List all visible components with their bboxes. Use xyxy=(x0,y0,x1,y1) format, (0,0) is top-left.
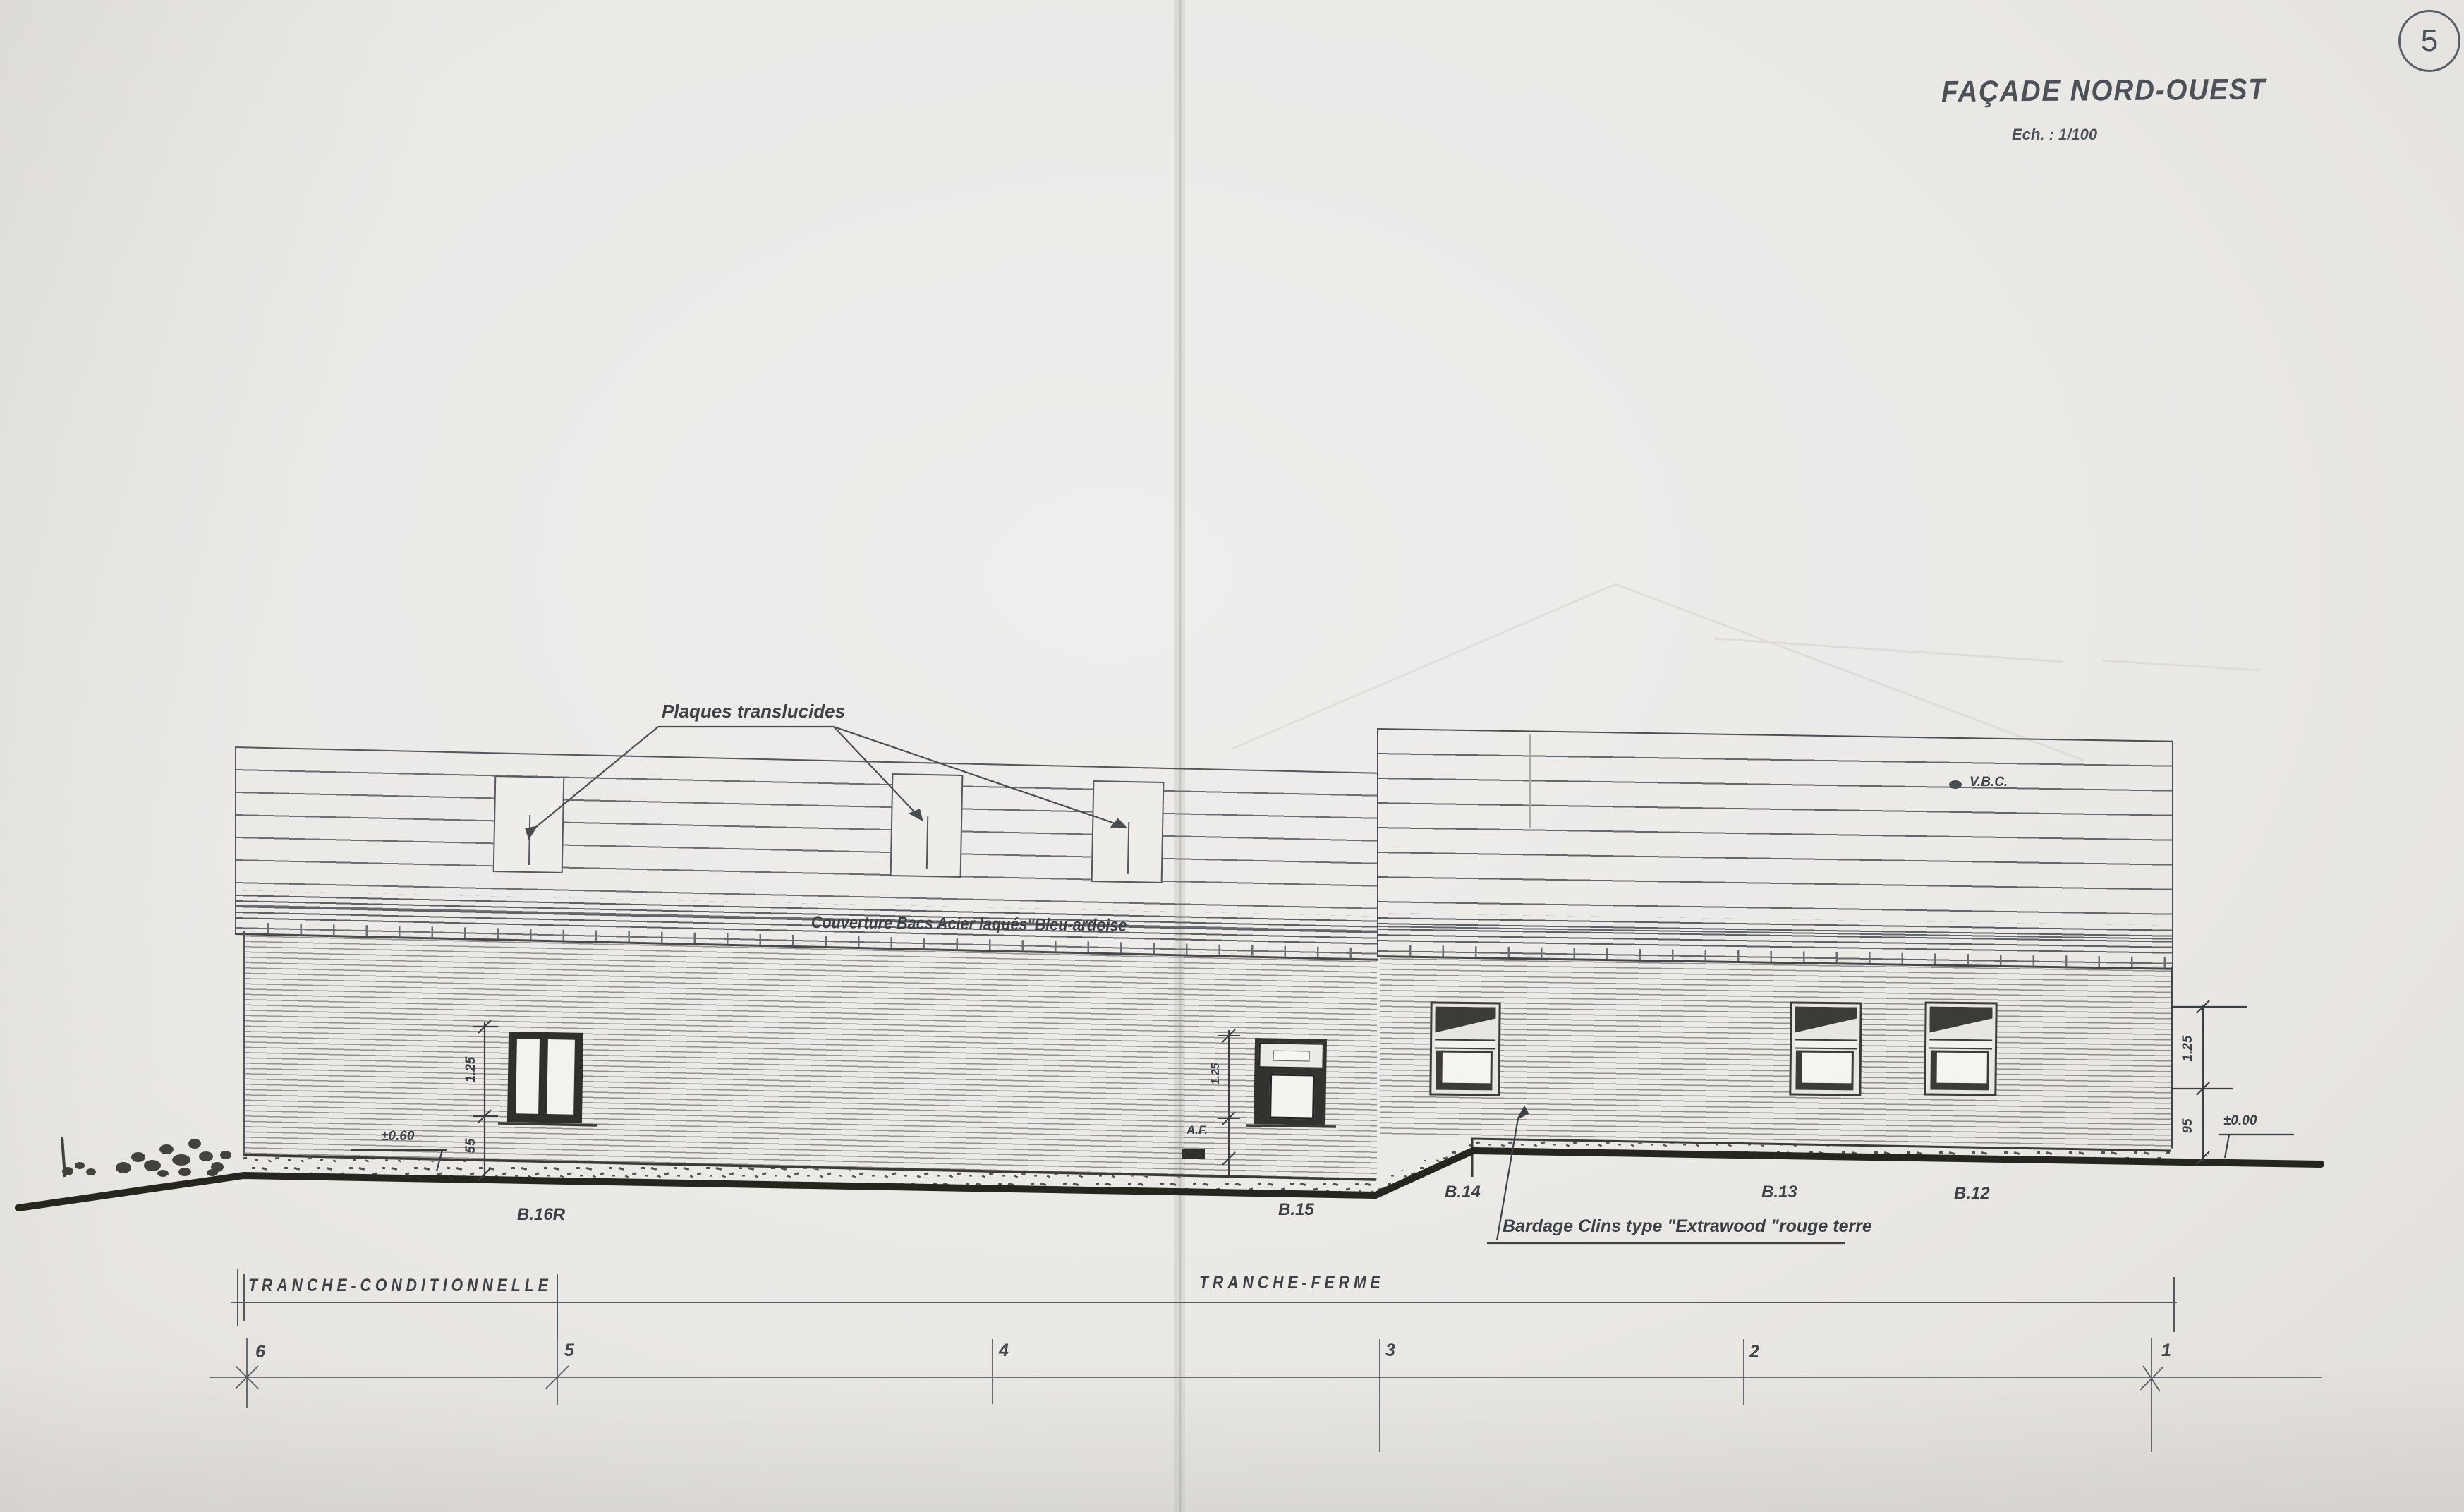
level-left: ±0.60 xyxy=(381,1129,414,1144)
window-sill-band xyxy=(1929,1039,1992,1050)
drawing-sheet: FAÇADE NORD-OUEST Ech. : 1/100 5 xyxy=(0,0,2464,1512)
window-label-b13: B.13 xyxy=(1761,1183,1797,1202)
window-b13 xyxy=(1789,1001,1862,1096)
roof-sheet-joint-line xyxy=(1529,734,1531,828)
grid-number-3: 3 xyxy=(1385,1341,1395,1361)
window-pane xyxy=(1436,1051,1493,1091)
scale-label: Ech. : 1/100 xyxy=(2012,126,2097,144)
grid-number-4: 4 xyxy=(999,1341,1009,1361)
dim-b15-height: 1.25 xyxy=(1210,1063,1222,1084)
open-transom-wedge xyxy=(1795,1007,1857,1037)
window-sill-band xyxy=(1435,1039,1495,1050)
open-transom-wedge xyxy=(1435,1007,1495,1037)
fold-crease xyxy=(1174,0,1185,1512)
window-b16r xyxy=(507,1032,583,1123)
open-transom-wedge xyxy=(1929,1007,1992,1037)
window-label-b15: B.15 xyxy=(1278,1200,1314,1220)
bardage-label: Bardage Clins type "Extrawood "rouge ter… xyxy=(1503,1216,1872,1237)
translucent-panel-1 xyxy=(493,775,565,873)
tranche-conditionnelle-label: TRANCHE-CONDITIONNELLE xyxy=(248,1276,552,1296)
sheet-number-badge: 5 xyxy=(2398,10,2460,72)
window-label-b14: B.14 xyxy=(1445,1183,1481,1202)
window-label-b12: B.12 xyxy=(1954,1184,1990,1204)
grid-number-6: 6 xyxy=(255,1342,265,1362)
dim-right-base: 95 xyxy=(2180,1118,2196,1133)
grid-number-1: 1 xyxy=(2161,1341,2171,1361)
af-label: A.F. xyxy=(1187,1123,1208,1137)
window-b12 xyxy=(1924,1001,1997,1096)
level-right: ±0.00 xyxy=(2223,1113,2257,1129)
panel-joint-line xyxy=(925,816,928,869)
transom-slot xyxy=(1273,1051,1310,1062)
grid-number-5: 5 xyxy=(564,1341,574,1361)
window-b14 xyxy=(1429,1001,1500,1096)
window-pane xyxy=(547,1039,575,1115)
vbc-label: V.B.C. xyxy=(1970,775,2008,790)
window-transom xyxy=(1258,1042,1324,1069)
bushes xyxy=(62,1137,231,1177)
structural-grid-line xyxy=(210,1338,2322,1452)
window-pane xyxy=(1930,1051,1989,1091)
translucent-panel-3 xyxy=(1091,780,1165,883)
plaques-label: Plaques translucides xyxy=(662,701,845,722)
drawing-title: FAÇADE NORD-OUEST xyxy=(1941,73,2266,109)
window-pane xyxy=(516,1039,540,1114)
window-pane xyxy=(1269,1073,1315,1119)
window-label-b16r: B.16R xyxy=(517,1205,565,1225)
sheet-number: 5 xyxy=(2421,23,2438,59)
right-building-roof xyxy=(1377,728,2173,970)
dim-b16-base: 55 xyxy=(463,1138,479,1153)
dim-right-height: 1.25 xyxy=(2180,1036,2196,1062)
window-b15 xyxy=(1254,1038,1327,1125)
translucent-panel-2 xyxy=(890,773,964,878)
dim-b16-height: 1.25 xyxy=(463,1057,479,1083)
window-transom xyxy=(1929,1007,1992,1037)
right-dimension-chain xyxy=(2171,1000,2294,1164)
left-building-roof xyxy=(235,746,1378,961)
couverture-label: Couverture Bacs Acier laqués"Bleu-ardois… xyxy=(811,913,1127,936)
panel-joint-line xyxy=(528,815,530,865)
tranche-ferme-label: TRANCHE-FERME xyxy=(1199,1273,1385,1293)
window-pane xyxy=(1795,1051,1854,1091)
panel-joint-line xyxy=(1127,822,1129,874)
window-transom xyxy=(1795,1007,1857,1037)
grid-number-2: 2 xyxy=(1749,1342,1759,1362)
window-transom xyxy=(1435,1007,1495,1037)
window-sill-band xyxy=(1795,1039,1857,1050)
